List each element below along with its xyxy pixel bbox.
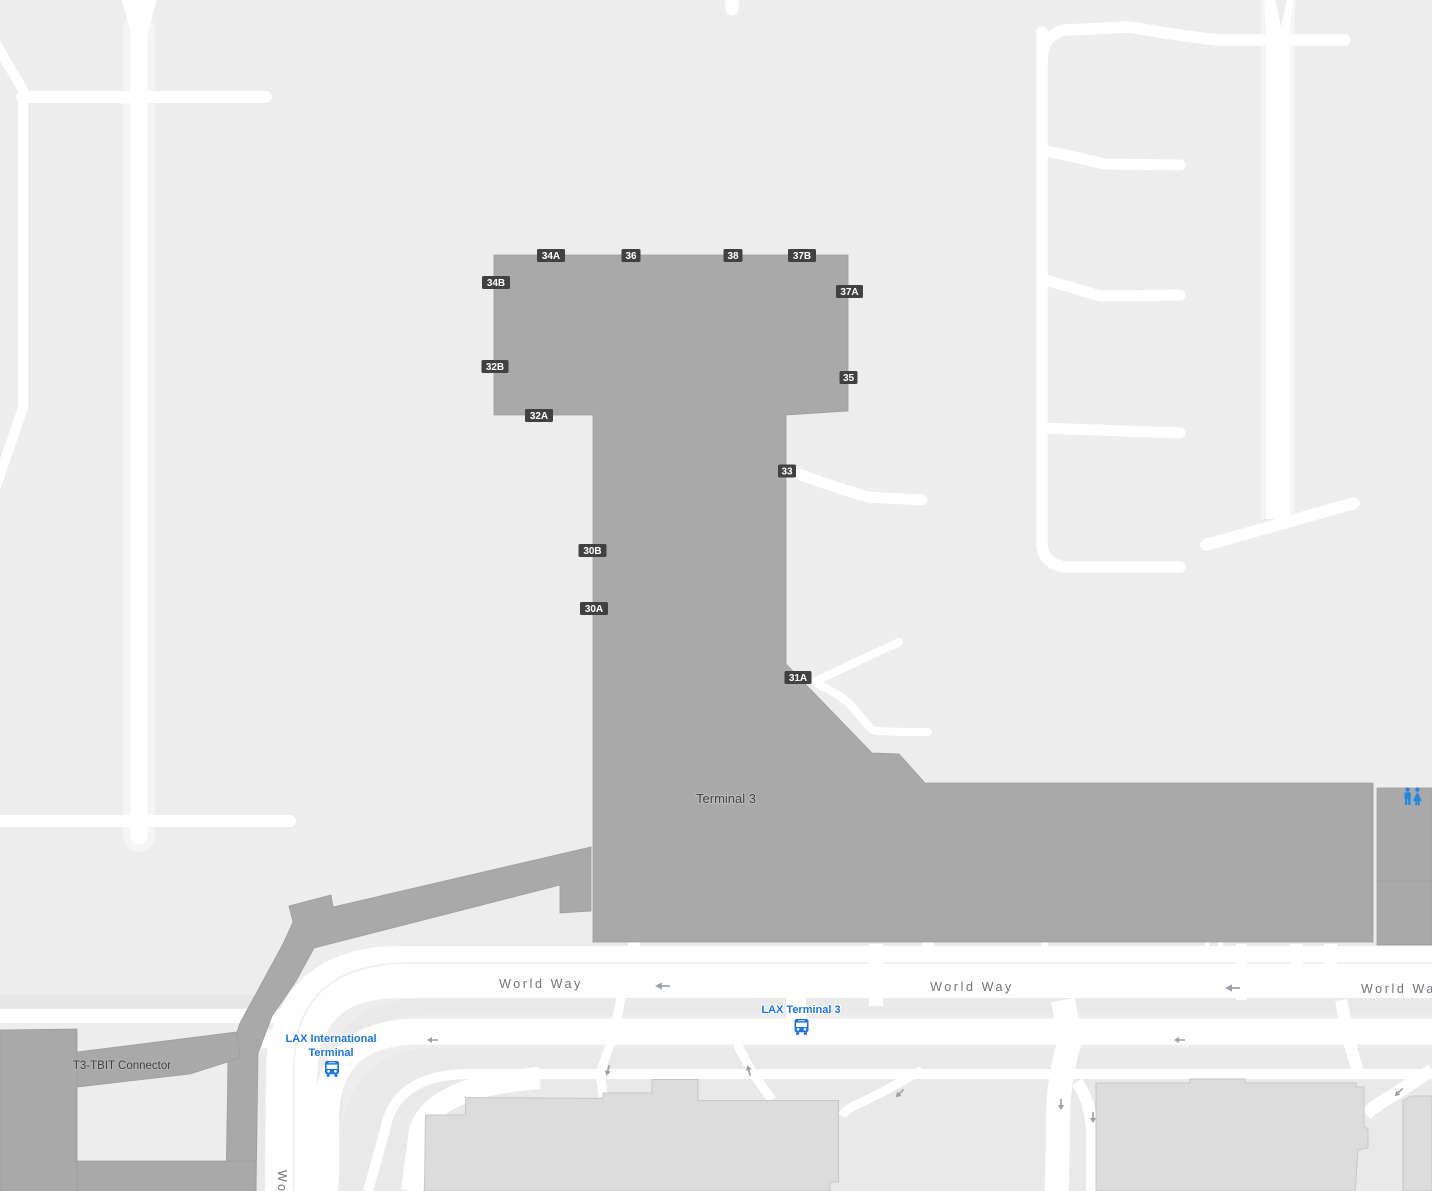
svg-text:37B: 37B [793, 251, 811, 262]
svg-text:30B: 30B [583, 546, 601, 557]
svg-text:LAX International: LAX International [285, 1033, 376, 1045]
svg-text:World Way: World Way [499, 977, 583, 991]
svg-text:Terminal 3: Terminal 3 [696, 791, 756, 806]
svg-text:31A: 31A [789, 673, 807, 684]
svg-text:32B: 32B [486, 362, 504, 373]
svg-text:37A: 37A [840, 287, 858, 298]
svg-text:34B: 34B [487, 278, 505, 289]
svg-text:32A: 32A [530, 411, 548, 422]
svg-text:World Way: World Way [930, 980, 1014, 994]
svg-text:36: 36 [625, 251, 637, 262]
svg-text:38: 38 [727, 251, 739, 262]
svg-text:30A: 30A [585, 604, 603, 615]
svg-text:T3-TBIT Connector: T3-TBIT Connector [73, 1060, 171, 1072]
svg-text:LAX Terminal 3: LAX Terminal 3 [761, 1004, 840, 1016]
svg-text:World Way: World Way [1361, 982, 1432, 996]
svg-text:33: 33 [781, 467, 793, 478]
svg-text:Terminal: Terminal [308, 1047, 353, 1059]
svg-text:World Way: World Way [275, 1170, 289, 1191]
svg-text:35: 35 [843, 373, 855, 384]
svg-text:34A: 34A [542, 251, 560, 262]
